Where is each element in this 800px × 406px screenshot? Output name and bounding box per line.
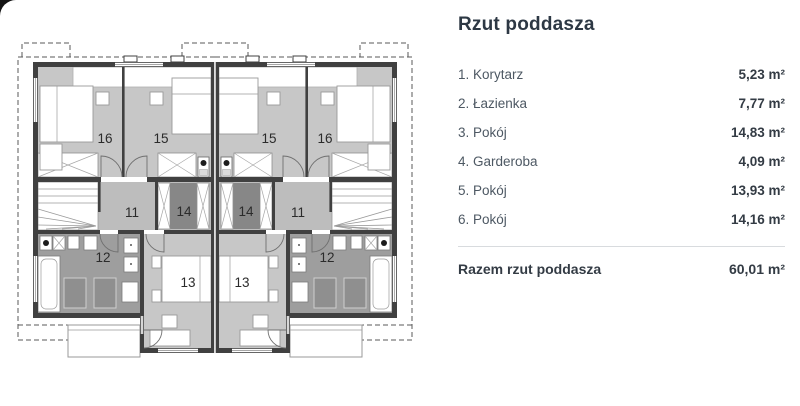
room-name: 5. Pokój bbox=[458, 183, 507, 198]
room-label: 16 bbox=[317, 131, 332, 146]
room-name: 4. Garderoba bbox=[458, 154, 538, 169]
room-label: 14 bbox=[238, 204, 254, 219]
total-label: Razem rzut poddasza bbox=[458, 261, 601, 277]
room-label: 15 bbox=[153, 131, 168, 146]
room-area: 13,93 m² bbox=[731, 183, 785, 198]
room-area: 14,16 m² bbox=[731, 212, 785, 227]
room-name: 3. Pokój bbox=[458, 125, 507, 140]
room-area: 7,77 m² bbox=[738, 96, 785, 111]
page-title: Rzut poddasza bbox=[458, 14, 785, 36]
area-legend: Rzut poddasza 1. Korytarz 5,23 m² 2. Łaz… bbox=[458, 14, 785, 281]
room-list: 1. Korytarz 5,23 m² 2. Łazienka 7,77 m² … bbox=[458, 60, 785, 234]
floor-plan: 16 15 15 16 11 14 14 11 12 13 13 12 bbox=[0, 0, 440, 370]
room-label: 15 bbox=[261, 131, 276, 146]
room-label: 11 bbox=[125, 205, 139, 220]
room-row: 4. Garderoba 4,09 m² bbox=[458, 147, 785, 176]
room-area: 14,83 m² bbox=[731, 125, 785, 140]
floor-plan-unit-mirrored bbox=[214, 43, 412, 357]
floor-plan-container: 16 15 15 16 11 14 14 11 12 13 13 12 bbox=[0, 0, 440, 370]
room-name: 2. Łazienka bbox=[458, 96, 527, 111]
room-label: 13 bbox=[180, 275, 195, 290]
room-name: 6. Pokój bbox=[458, 212, 507, 227]
total-row: Razem rzut poddasza 60,01 m² bbox=[458, 257, 785, 281]
floor-plan-unit bbox=[18, 43, 216, 357]
room-area: 4,09 m² bbox=[738, 154, 785, 169]
room-area: 5,23 m² bbox=[738, 67, 785, 82]
room-name: 1. Korytarz bbox=[458, 67, 523, 82]
room-label: 11 bbox=[291, 205, 305, 220]
room-row: 3. Pokój 14,83 m² bbox=[458, 118, 785, 147]
room-label: 16 bbox=[97, 131, 112, 146]
total-area: 60,01 m² bbox=[729, 261, 785, 277]
room-label: 12 bbox=[319, 250, 334, 265]
room-row: 6. Pokój 14,16 m² bbox=[458, 205, 785, 234]
room-label: 14 bbox=[176, 204, 192, 219]
window-corner bbox=[0, 0, 22, 22]
room-label: 12 bbox=[95, 250, 110, 265]
room-label: 13 bbox=[234, 275, 249, 290]
room-row: 2. Łazienka 7,77 m² bbox=[458, 89, 785, 118]
divider bbox=[458, 246, 785, 247]
room-row: 5. Pokój 13,93 m² bbox=[458, 176, 785, 205]
room-row: 1. Korytarz 5,23 m² bbox=[458, 60, 785, 89]
